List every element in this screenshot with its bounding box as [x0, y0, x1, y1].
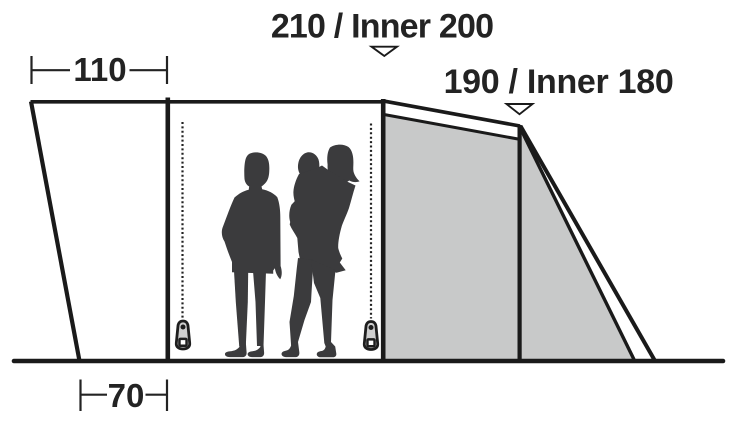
svg-text:210 / Inner 200: 210 / Inner 200 — [271, 8, 493, 46]
svg-text:190 / Inner 180: 190 / Inner 180 — [444, 63, 674, 101]
svg-text:110: 110 — [73, 51, 126, 88]
svg-text:70: 70 — [108, 377, 145, 414]
